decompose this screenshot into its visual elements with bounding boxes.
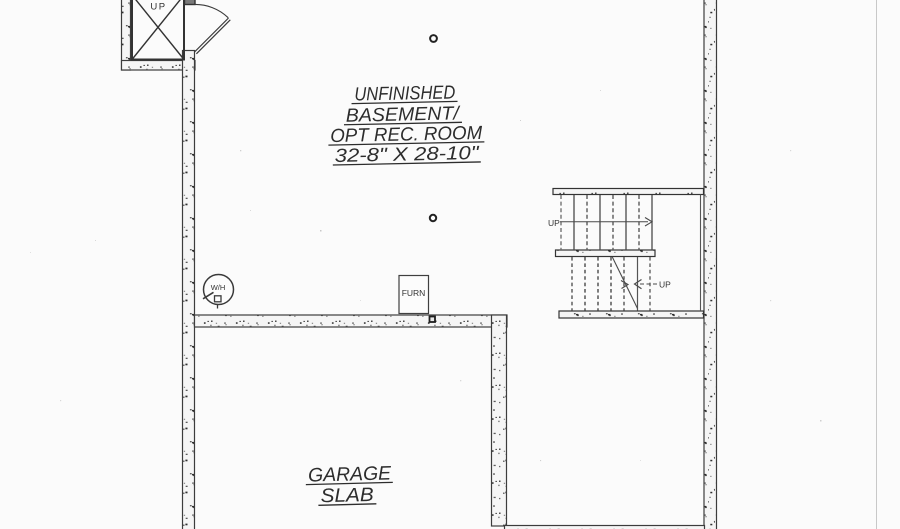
svg-text:UP: UP (659, 280, 671, 290)
svg-text:W/H: W/H (211, 283, 226, 292)
svg-text:UP: UP (150, 2, 166, 13)
svg-text:UP: UP (548, 218, 560, 228)
svg-text:FURN: FURN (402, 288, 426, 298)
